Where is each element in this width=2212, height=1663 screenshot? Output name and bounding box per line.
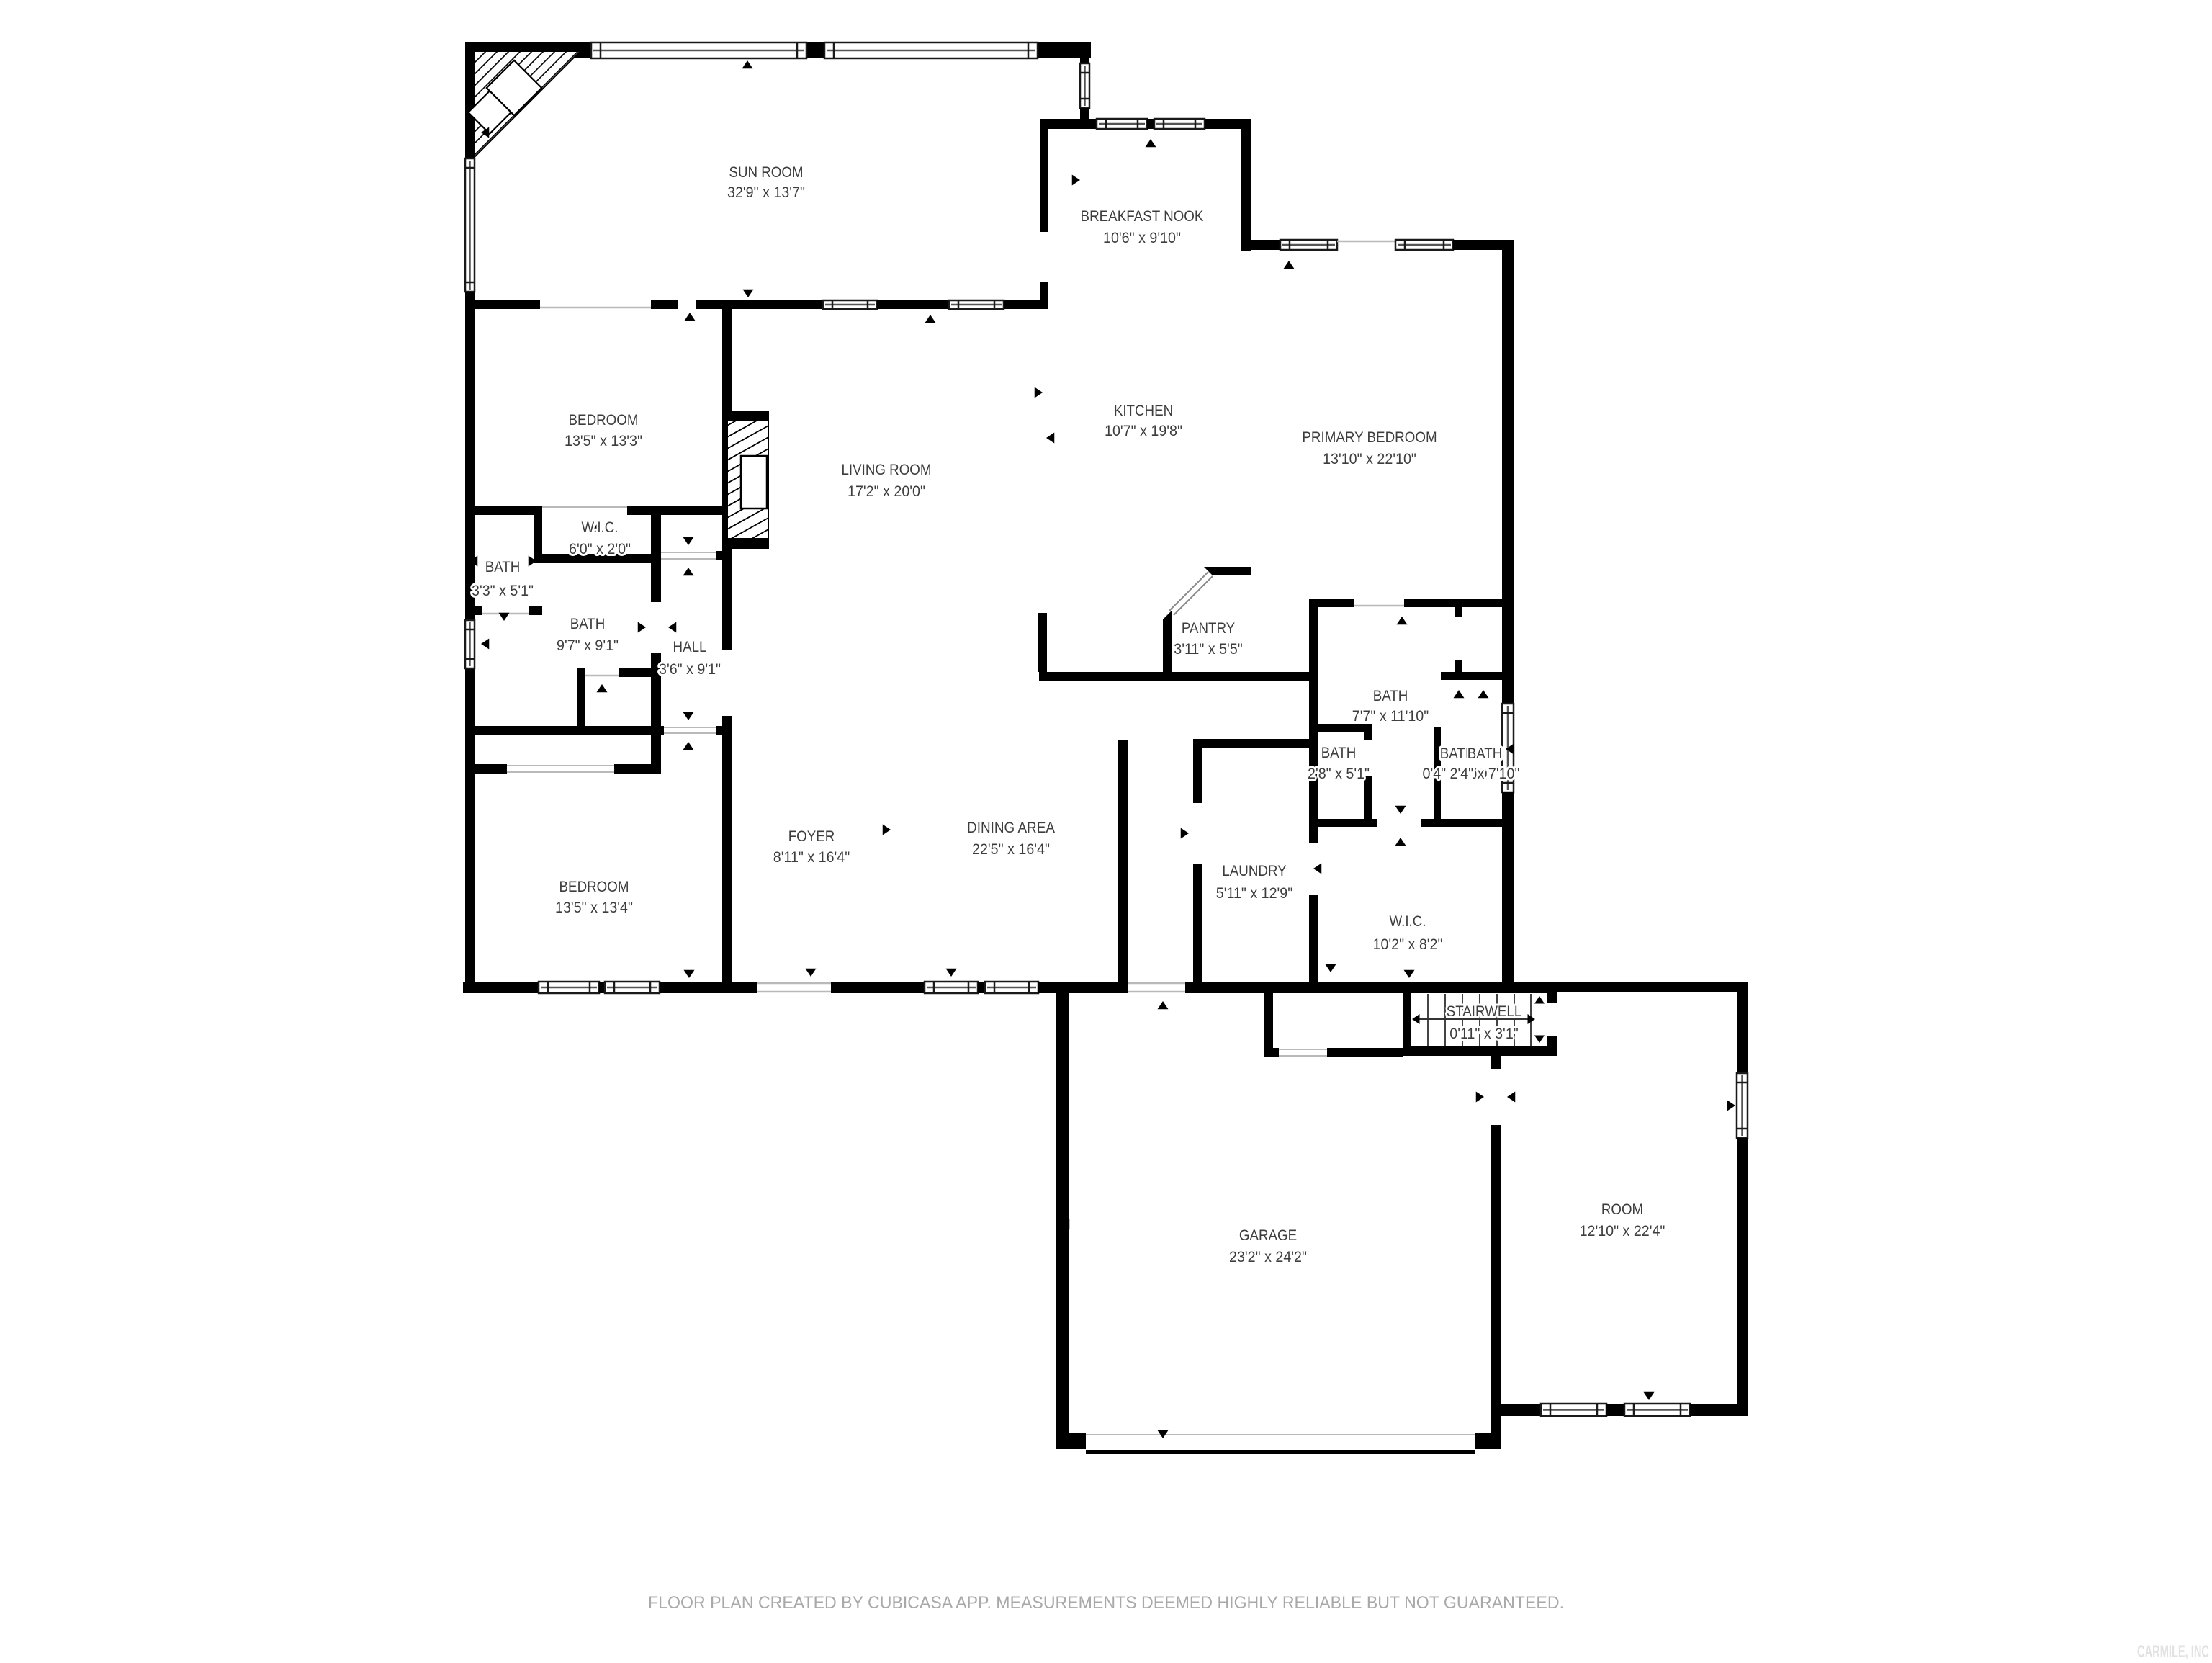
svg-text:GARAGE: GARAGE (1239, 1227, 1297, 1244)
svg-text:PRIMARY BEDROOM: PRIMARY BEDROOM (1302, 429, 1437, 446)
svg-text:BEDROOM: BEDROOM (569, 411, 639, 429)
svg-text:13'5" x 13'3": 13'5" x 13'3" (565, 432, 642, 449)
svg-text:BATH: BATH (1321, 744, 1357, 761)
svg-text:10'7" x 19'8": 10'7" x 19'8" (1105, 422, 1182, 439)
svg-text:9'7" x 9'1": 9'7" x 9'1" (557, 637, 619, 654)
svg-text:13'5" x 13'4": 13'5" x 13'4" (555, 899, 633, 916)
svg-text:0'11" x 3'1": 0'11" x 3'1" (1449, 1025, 1519, 1042)
svg-text:DINING AREA: DINING AREA (967, 819, 1055, 836)
svg-text:5'11" x 12'9": 5'11" x 12'9" (1216, 884, 1292, 902)
svg-text:3'3" x 5'1": 3'3" x 5'1" (472, 582, 534, 599)
svg-text:FLOOR PLAN CREATED BY CUBICASA: FLOOR PLAN CREATED BY CUBICASA APP. MEAS… (648, 1593, 1564, 1613)
svg-text:10'2" x 8'2": 10'2" x 8'2" (1373, 936, 1443, 953)
svg-text:10'6" x 9'10": 10'6" x 9'10" (1103, 229, 1181, 246)
svg-text:BATH: BATH (1373, 687, 1408, 704)
svg-text:ROOM: ROOM (1601, 1201, 1643, 1218)
svg-text:BATH: BATH (485, 558, 521, 575)
svg-text:3'11" x 5'5": 3'11" x 5'5" (1174, 640, 1243, 658)
svg-text:BATH: BATH (1467, 745, 1503, 762)
svg-text:FOYER: FOYER (788, 828, 835, 845)
svg-text:17'2" x 20'0": 17'2" x 20'0" (848, 483, 925, 500)
svg-text:LAUNDRY: LAUNDRY (1222, 862, 1286, 879)
svg-text:W.I.C.: W.I.C. (582, 519, 619, 536)
svg-text:BREAKFAST NOOK: BREAKFAST NOOK (1081, 207, 1204, 225)
svg-text:HALL: HALL (673, 638, 707, 655)
svg-text:32'9" x 13'7": 32'9" x 13'7" (727, 184, 805, 201)
svg-text:12'10" x 22'4": 12'10" x 22'4" (1580, 1222, 1665, 1240)
svg-text:BEDROOM: BEDROOM (559, 878, 629, 895)
svg-text:3'6" x 9'1": 3'6" x 9'1" (659, 660, 721, 678)
svg-text:STAIRWELL: STAIRWELL (1447, 1003, 1522, 1020)
svg-text:W.I.C.: W.I.C. (1390, 913, 1426, 930)
svg-text:KITCHEN: KITCHEN (1114, 402, 1173, 419)
svg-text:CARMILE, INC: CARMILE, INC (2137, 1642, 2209, 1659)
svg-text:6'0" x 2'0": 6'0" x 2'0" (569, 540, 631, 557)
svg-text:SUN ROOM: SUN ROOM (729, 163, 803, 181)
svg-text:2'4" x 7'10": 2'4" x 7'10" (1450, 765, 1520, 782)
svg-text:22'5" x 16'4": 22'5" x 16'4" (972, 841, 1050, 858)
svg-text:2'8" x 5'1": 2'8" x 5'1" (1308, 765, 1370, 782)
svg-text:BATH: BATH (570, 615, 606, 632)
svg-text:LIVING ROOM: LIVING ROOM (842, 461, 932, 478)
svg-text:23'2" x 24'2": 23'2" x 24'2" (1229, 1248, 1307, 1265)
svg-text:13'10" x 22'10": 13'10" x 22'10" (1323, 450, 1416, 467)
svg-text:PANTRY: PANTRY (1182, 619, 1235, 637)
svg-text:7'7" x 11'10": 7'7" x 11'10" (1352, 707, 1429, 725)
svg-text:8'11" x 16'4": 8'11" x 16'4" (773, 848, 850, 866)
